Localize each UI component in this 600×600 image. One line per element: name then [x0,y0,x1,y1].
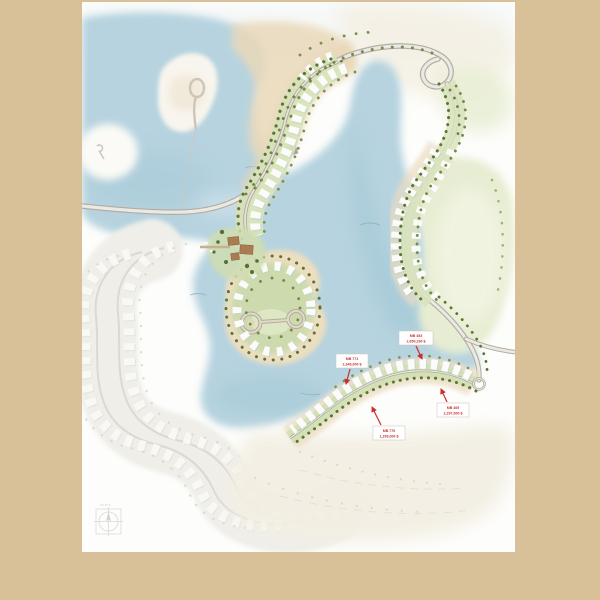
site-plan-map: MB 453 2,650,290 $ MB 771 2,349,000 $ MB… [0,0,600,600]
lot-id: MB 771 [346,357,359,361]
lot-id: MB 770 [383,429,396,433]
compass-label: NORTH [100,503,111,507]
lot-price: 2,349,000 $ [343,363,362,367]
lot-price: 2,650,290 $ [407,340,426,344]
lot-price: 2,297,000 $ [444,412,463,416]
site-plan-viewport: MB 453 2,650,290 $ MB 771 2,349,000 $ MB… [0,0,600,600]
lot-id: MB 453 [410,334,423,338]
hook-islet [89,140,109,160]
lot-id: MB 469 [447,406,460,410]
lot-price: 1,299,000 $ [380,435,399,439]
